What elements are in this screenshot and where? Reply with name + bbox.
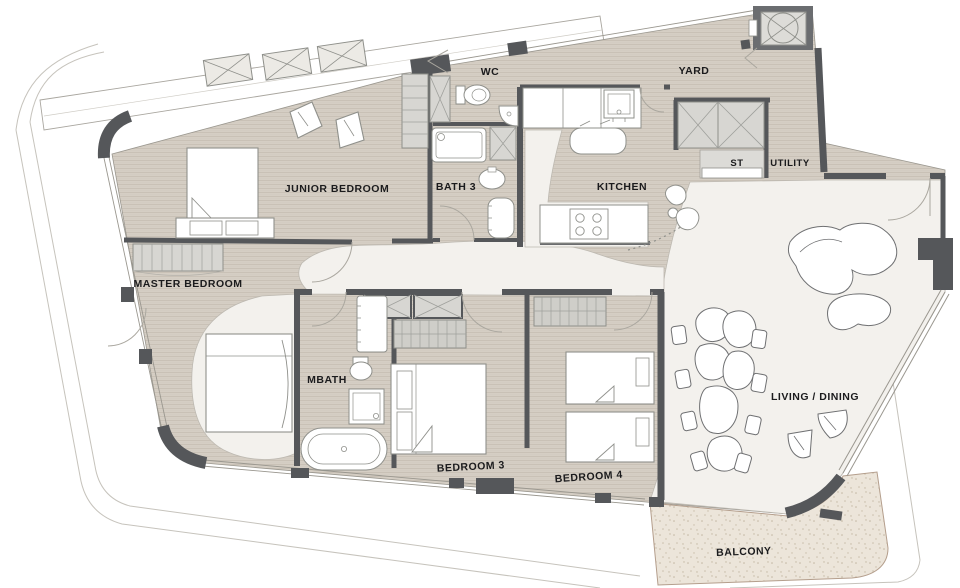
wc-shower-unit	[430, 76, 450, 122]
room-label-kitchen: KITCHEN	[597, 181, 647, 193]
bedroom3-closet	[394, 320, 466, 348]
stove	[570, 209, 608, 239]
master-bed	[206, 334, 292, 432]
hall-plant	[676, 208, 699, 230]
room-label-st: ST	[730, 158, 743, 169]
master-closet	[133, 244, 223, 276]
bedroom3-furniture	[391, 364, 486, 454]
room-label-wc: WC	[481, 66, 500, 78]
bedroom4-closet	[534, 297, 606, 326]
room-label-living-dining: LIVING / DINING	[771, 391, 859, 403]
room-label-yard: YARD	[679, 65, 710, 77]
service-shaft	[749, 6, 813, 50]
room-label-utility: UTILITY	[770, 158, 810, 169]
master-bedroom-furniture	[206, 334, 292, 432]
kitchen-island	[570, 128, 626, 154]
mbath-toilet	[350, 362, 372, 380]
room-label-balcony: BALCONY	[716, 545, 772, 559]
junior-cabinet	[402, 74, 428, 148]
room-label-master-bedroom: MASTER BEDROOM	[133, 278, 242, 290]
room-label-junior-bedroom: JUNIOR BEDROOM	[285, 183, 389, 195]
room-label-bath-3: BATH 3	[436, 181, 476, 193]
floor-plan-drawing: JUNIOR BEDROOM MASTER BEDROOM WC BATH 3 …	[0, 0, 960, 588]
room-label-mbath: MBATH	[307, 374, 347, 386]
bath3-washer-unit	[490, 127, 516, 160]
mbath-vanity	[357, 296, 387, 352]
floor-plan-page: JUNIOR BEDROOM MASTER BEDROOM WC BATH 3 …	[0, 0, 960, 588]
